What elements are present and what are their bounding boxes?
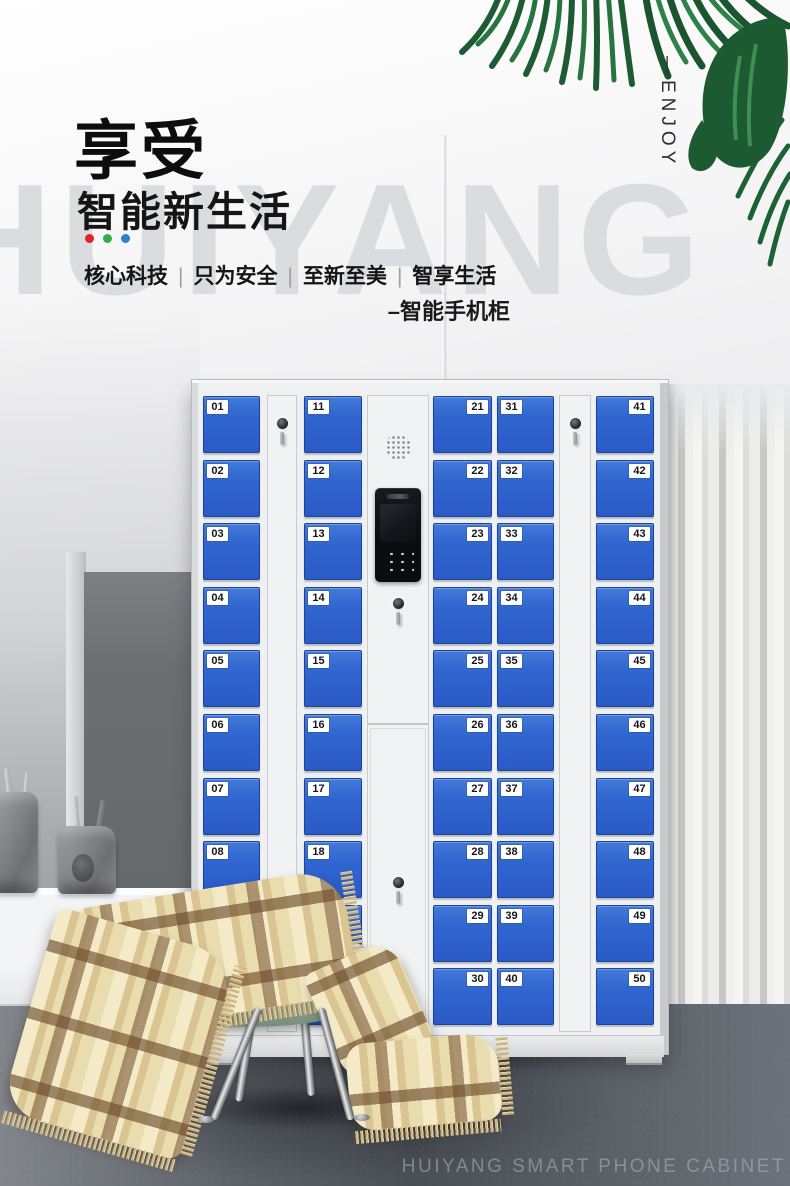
door-number-tag: 27 (467, 782, 488, 796)
locker-door: 35 (497, 650, 554, 707)
tagline-item: 至新至美 (303, 265, 387, 288)
door-number-tag: 31 (501, 400, 522, 414)
curtain (652, 384, 790, 1034)
door-number-tag: 15 (308, 654, 329, 668)
product-label: –智能手机柜 (240, 294, 510, 326)
locker-door: 21 (433, 396, 492, 453)
locker-column-7 (560, 396, 590, 1031)
locker-door: 23 (433, 523, 492, 580)
locker-door: 15 (304, 650, 362, 707)
door-number-tag: 08 (207, 845, 228, 859)
tagline-separator: | (178, 265, 183, 288)
key-lock-icon (391, 598, 405, 625)
locker-door: 17 (304, 778, 362, 835)
stool-foot-cap (198, 1116, 214, 1123)
promo-poster: HUIYANG 01020304050607080910111213141516… (0, 0, 790, 1186)
door-number-tag: 40 (501, 972, 522, 986)
locker-door: 46 (596, 714, 654, 771)
door-number-tag: 16 (308, 718, 329, 732)
locker-column-8: 41424344454647484950 (596, 396, 654, 1031)
locker-door: 36 (497, 714, 554, 771)
door-number-tag: 28 (467, 845, 488, 859)
door-number-tag: 22 (467, 464, 488, 478)
vase (0, 792, 38, 893)
locker-door: 03 (203, 523, 260, 580)
tagline-item: 智享生活 (412, 265, 496, 288)
locker-door: 40 (497, 968, 554, 1025)
locker-door: 33 (497, 523, 554, 580)
panel-seam (368, 723, 428, 725)
locker-door: 13 (304, 523, 362, 580)
locker-door: 16 (304, 714, 362, 771)
locker-door: 12 (304, 460, 362, 517)
key-lock-icon (391, 877, 405, 904)
door-number-tag: 43 (629, 527, 650, 541)
locker-door: 39 (497, 905, 554, 962)
speaker-grille-icon (385, 434, 411, 460)
locker-door: 49 (596, 905, 654, 962)
key-lock-icon (568, 418, 582, 445)
locker-door: 44 (596, 587, 654, 644)
locker-column-6: 31323334353637383940 (497, 396, 554, 1031)
door-number-tag: 50 (629, 972, 650, 986)
door-number-tag: 34 (501, 591, 522, 605)
door-number-tag: 46 (629, 718, 650, 732)
door-number-tag: 18 (308, 845, 329, 859)
locker-door: 30 (433, 968, 492, 1025)
door-number-tag: 05 (207, 654, 228, 668)
locker-door: 45 (596, 650, 654, 707)
door-number-tag: 41 (629, 400, 650, 414)
locker-door: 43 (596, 523, 654, 580)
intercom-device (375, 488, 421, 582)
locker-door: 22 (433, 460, 492, 517)
door-number-tag: 33 (501, 527, 522, 541)
cabinet-foot (626, 1054, 662, 1065)
door-number-tag: 14 (308, 591, 329, 605)
locker-door: 48 (596, 841, 654, 898)
palm-leaves-icon (440, 0, 790, 280)
locker-door: 05 (203, 650, 260, 707)
door-number-tag: 17 (308, 782, 329, 796)
locker-door: 11 (304, 396, 362, 453)
dot-icon (103, 234, 112, 243)
locker-door: 41 (596, 396, 654, 453)
locker-door: 01 (203, 396, 260, 453)
locker-door: 28 (433, 841, 492, 898)
locker-door: 29 (433, 905, 492, 962)
locker-door: 42 (596, 460, 654, 517)
vase-hole (72, 854, 94, 882)
locker-column-4 (368, 396, 428, 1031)
locker-door: 34 (497, 587, 554, 644)
enjoy-vertical-label: —ENJOY (656, 56, 678, 168)
door-number-tag: 06 (207, 718, 228, 732)
door-number-tag: 36 (501, 718, 522, 732)
door-number-tag: 38 (501, 845, 522, 859)
door-number-tag: 37 (501, 782, 522, 796)
door-number-tag: 32 (501, 464, 522, 478)
door-number-tag: 23 (467, 527, 488, 541)
footer-caption: HUIYANG SMART PHONE CABINET (402, 1156, 786, 1178)
locker-door: 32 (497, 460, 554, 517)
locker-column-5: 21222324252627282930 (433, 396, 492, 1031)
accent-dots (85, 234, 130, 243)
locker-door: 24 (433, 587, 492, 644)
dot-icon (121, 234, 130, 243)
door-number-tag: 26 (467, 718, 488, 732)
locker-door: 37 (497, 778, 554, 835)
tagline-separator: | (287, 265, 292, 288)
camera-slit-icon (387, 494, 409, 499)
door-number-tag: 01 (207, 400, 228, 414)
locker-door: 04 (203, 587, 260, 644)
vase (58, 826, 116, 894)
door-number-tag: 47 (629, 782, 650, 796)
locker-door: 26 (433, 714, 492, 771)
locker-door: 50 (596, 968, 654, 1025)
stool-foot-cap (354, 1114, 370, 1121)
tagline-separator: | (397, 265, 402, 288)
door-number-tag: 24 (467, 591, 488, 605)
locker-door: 02 (203, 460, 260, 517)
key-lock-icon (275, 418, 289, 445)
door-number-tag: 04 (207, 591, 228, 605)
door-number-tag: 49 (629, 909, 650, 923)
tagline: 核心科技|只为安全|至新至美|智享生活 (84, 260, 496, 290)
door-number-tag: 11 (308, 400, 329, 414)
intercom-screen (380, 504, 416, 542)
locker-door: 14 (304, 587, 362, 644)
door-number-tag: 42 (629, 464, 650, 478)
dot-icon (85, 234, 94, 243)
door-number-tag: 35 (501, 654, 522, 668)
locker-door: 25 (433, 650, 492, 707)
door-number-tag: 44 (629, 591, 650, 605)
locker-door: 06 (203, 714, 260, 771)
door-number-tag: 25 (467, 654, 488, 668)
door-number-tag: 02 (207, 464, 228, 478)
door-number-tag: 12 (308, 464, 329, 478)
door-number-tag: 07 (207, 782, 228, 796)
door-number-tag: 21 (467, 400, 488, 414)
locker-door: 38 (497, 841, 554, 898)
locker-door: 47 (596, 778, 654, 835)
door-number-tag: 30 (467, 972, 488, 986)
keypad-icon (384, 548, 414, 576)
locker-door: 31 (497, 396, 554, 453)
tagline-item: 只为安全 (193, 265, 277, 288)
door-number-tag: 45 (629, 654, 650, 668)
door-number-tag: 13 (308, 527, 329, 541)
door-number-tag: 03 (207, 527, 228, 541)
page-subtitle: 智能新生活 (77, 178, 292, 238)
locker-door: 07 (203, 778, 260, 835)
door-number-tag: 48 (629, 845, 650, 859)
door-number-tag: 29 (467, 909, 488, 923)
tagline-item: 核心科技 (84, 265, 168, 288)
door-number-tag: 39 (501, 909, 522, 923)
locker-door: 27 (433, 778, 492, 835)
